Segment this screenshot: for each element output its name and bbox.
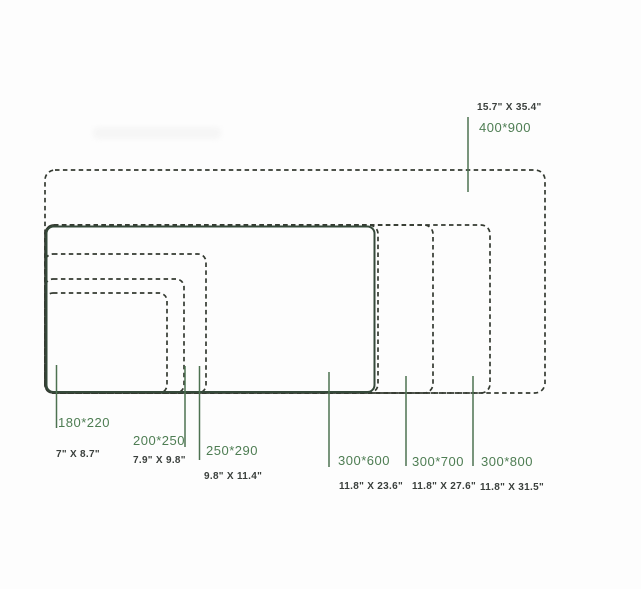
label-inch-180x220: 7" X 8.7" xyxy=(56,449,100,460)
label-mm-300x600: 300*600 xyxy=(338,453,390,468)
label-inch-300x800: 11.8" X 31.5" xyxy=(480,482,544,493)
rect-outline-250x290 xyxy=(45,254,206,393)
label-inch-300x600: 11.8" X 23.6" xyxy=(339,481,403,492)
label-mm-400x900: 400*900 xyxy=(479,120,531,135)
rect-solid-pad-300x600 xyxy=(47,227,375,393)
diagram-lines xyxy=(0,0,641,589)
size-comparison-diagram: 180*220 7" X 8.7" 200*250 7.9" X 9.8" 25… xyxy=(0,0,641,589)
rect-outline-400x900 xyxy=(45,170,545,393)
label-mm-250x290: 250*290 xyxy=(206,443,258,458)
label-inch-250x290: 9.8" X 11.4" xyxy=(204,471,262,482)
label-inch-300x700: 11.8" X 27.6" xyxy=(412,481,476,492)
label-mm-180x220: 180*220 xyxy=(58,415,110,430)
rect-outline-180x220 xyxy=(45,293,167,393)
label-inch-200x250: 7.9" X 9.8" xyxy=(133,455,186,466)
label-mm-300x700: 300*700 xyxy=(412,454,464,469)
label-inch-400x900: 15.7" X 35.4" xyxy=(477,102,542,113)
rect-outline-300x800 xyxy=(45,225,490,393)
rect-outline-300x600 xyxy=(45,225,378,393)
label-mm-300x800: 300*800 xyxy=(481,454,533,469)
rect-outline-200x250 xyxy=(45,279,184,393)
label-mm-200x250: 200*250 xyxy=(133,433,185,448)
